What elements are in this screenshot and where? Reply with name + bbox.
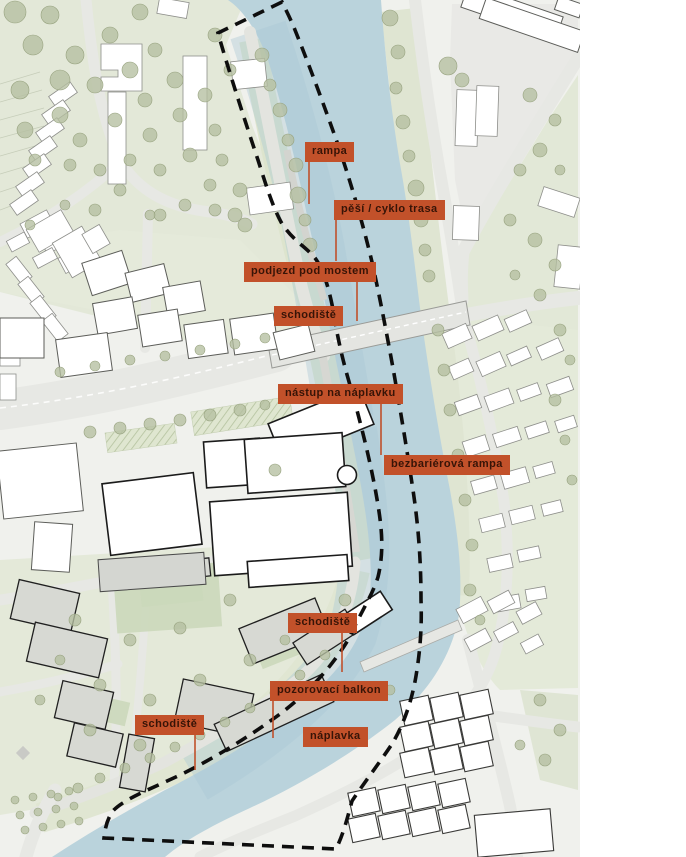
page-margin	[580, 0, 686, 857]
gray-slab-building	[98, 552, 206, 591]
site-plan-page: rampa pěší / cyklo trasa podjezd pod mos…	[0, 0, 686, 857]
round-pavilion	[338, 466, 357, 485]
map-label-podjezd-pod-mostem: podjezd pod mostem	[244, 262, 376, 282]
map-label-pozorovaci-balkon: pozorovací balkon	[270, 681, 388, 701]
map-label-rampa: rampa	[305, 142, 354, 162]
map-label-schodiste-u-mostu: schodiště	[274, 306, 343, 326]
map-label-schodiste-vychod: schodiště	[288, 613, 357, 633]
map-label-bezbarierova-rampa: bezbariérová rampa	[384, 455, 510, 475]
map-label-naplavka: náplavka	[303, 727, 368, 747]
map-label-schodiste-zapad: schodiště	[135, 715, 204, 735]
map-label-nastup-na-naplavku: nástup na náplavku	[278, 384, 403, 404]
map-label-pesi-cyklo-trasa: pěší / cyklo trasa	[334, 200, 445, 220]
